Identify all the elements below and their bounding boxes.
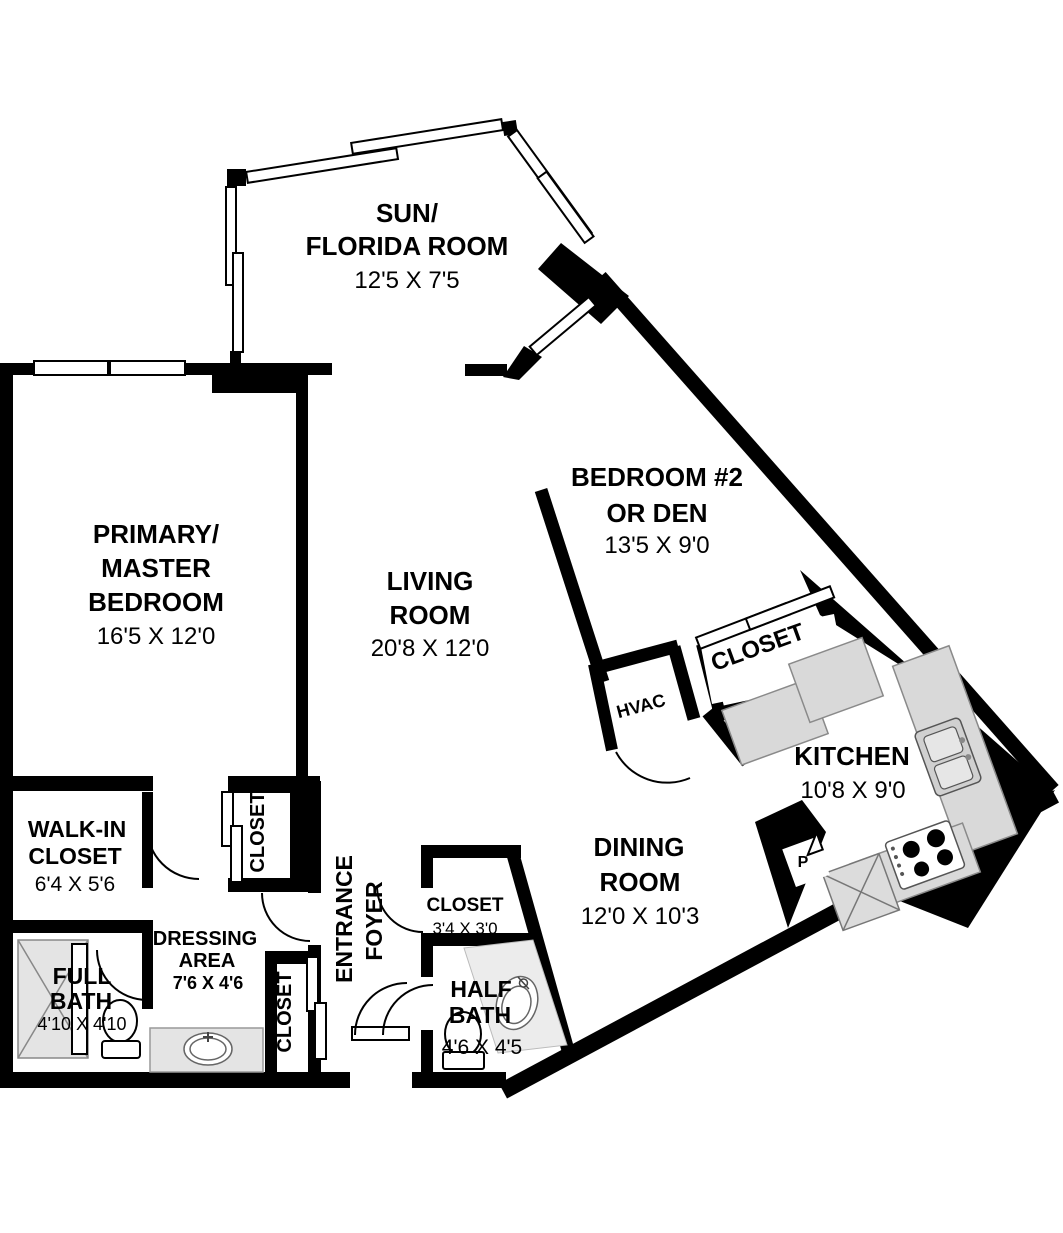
window-sun-right-2 [538, 172, 594, 243]
label-living-dims: 20'8 X 12'0 [371, 635, 490, 662]
wall-closet-right [290, 783, 310, 892]
label-dining-dims: 12'0 X 10'3 [581, 903, 700, 930]
label-dressing-2: AREA [179, 950, 236, 972]
wall-sun-topleft-corner [227, 169, 246, 186]
door-hallcloset-2 [231, 826, 242, 882]
wall-master-living [296, 363, 308, 790]
wall-foyer-jamb-1 [421, 858, 433, 888]
label-foyer-closet: CLOSET [426, 895, 503, 916]
wall-foyercloset-top [421, 845, 521, 858]
label-living: LIVING [387, 566, 474, 596]
wall-walkin-bottom [0, 920, 153, 933]
label-halfbath: HALF [450, 976, 511, 1002]
label-master-3: BEDROOM [88, 587, 224, 617]
window-master-1 [34, 361, 108, 375]
label-pantry: P [798, 854, 809, 871]
wall-poche-top [212, 363, 300, 393]
label-bedroom2-dims: 13'5 X 9'0 [604, 532, 709, 559]
label-bedroom2: BEDROOM #2 [571, 462, 743, 492]
label-fullbath: FULL [53, 963, 112, 989]
label-dining-2: ROOM [600, 867, 681, 897]
window-sun-top-1 [246, 148, 398, 183]
wall-outer-bottom [0, 1072, 506, 1088]
label-walkin-2: CLOSET [28, 843, 121, 869]
label-master: PRIMARY/ [93, 519, 219, 549]
label-halfbath-dims: 4'6 X 4'5 [442, 1036, 522, 1059]
wall-hvac-top [596, 646, 678, 668]
label-master-2: MASTER [101, 553, 211, 583]
floor-plan-svg: SUN/ FLORIDA ROOM 12'5 X 7'5 PRIMARY/ MA… [0, 0, 1063, 1228]
wall-master-bottom-left [0, 776, 153, 791]
toilet-fullbath-tank [102, 1041, 140, 1058]
label-kitchen: KITCHEN [794, 741, 910, 771]
label-dining: DINING [594, 832, 685, 862]
label-dressing: DRESSING [153, 928, 257, 950]
label-bedroom2-2: OR DEN [606, 498, 707, 528]
label-halfbath-2: BATH [449, 1002, 511, 1028]
entry-door-gap [350, 1066, 412, 1092]
floor-plan: SUN/ FLORIDA ROOM 12'5 X 7'5 PRIMARY/ MA… [0, 0, 1063, 1228]
label-kitchen-dims: 10'8 X 9'0 [800, 777, 905, 804]
label-living-2: ROOM [390, 600, 471, 630]
label-foyer-closet-dims: 3'4 X 3'0 [432, 919, 497, 938]
window-sun-bottom [530, 297, 596, 355]
label-hall-closet: CLOSET [247, 791, 269, 872]
wall-outer-left [0, 363, 13, 1087]
label-hvac: HVAC [614, 690, 667, 722]
label-sunroom-2: FLORIDA ROOM [306, 231, 509, 261]
wall-foyer-jamb-3 [421, 1030, 433, 1074]
door-arc-foyer-dressing [262, 893, 310, 941]
label-entry-closet: CLOSET [274, 971, 296, 1052]
label-foyer-2: FOYER [361, 881, 387, 961]
wall-sun-left-stub [230, 351, 241, 365]
label-walkin-dims: 6'4 X 5'6 [35, 873, 115, 896]
door-arc-master [147, 827, 199, 879]
wall-hvac-right [674, 647, 694, 719]
label-master-dims: 16'5 X 12'0 [97, 623, 216, 650]
front-door-leaf [352, 1027, 409, 1040]
window-sun-left-2 [233, 253, 243, 352]
label-sunroom-dims: 12'5 X 7'5 [354, 267, 459, 294]
wall-fullbath-right [142, 933, 153, 1009]
label-foyer: ENTRANCE [331, 855, 357, 983]
label-dressing-dims: 7'6 X 4'6 [173, 973, 244, 993]
wall-foyer-jamb-2 [421, 944, 433, 977]
wall-sun-bottomright [465, 364, 507, 376]
label-walkin: WALK-IN [28, 816, 126, 842]
wall-foyer-left-upper [308, 781, 321, 893]
labels: SUN/ FLORIDA ROOM 12'5 X 7'5 PRIMARY/ MA… [28, 198, 910, 1059]
door-arc-hvac [616, 752, 690, 783]
window-master-2 [110, 361, 185, 375]
label-sunroom: SUN/ [376, 198, 438, 228]
label-fullbath-dims: 4'10 X 4'10 [38, 1014, 127, 1034]
window-sun-top-2 [351, 119, 503, 154]
door-entrycloset-2 [315, 1003, 326, 1059]
wall-bedroom2-left [541, 490, 603, 682]
label-fullbath-2: BATH [50, 988, 112, 1014]
